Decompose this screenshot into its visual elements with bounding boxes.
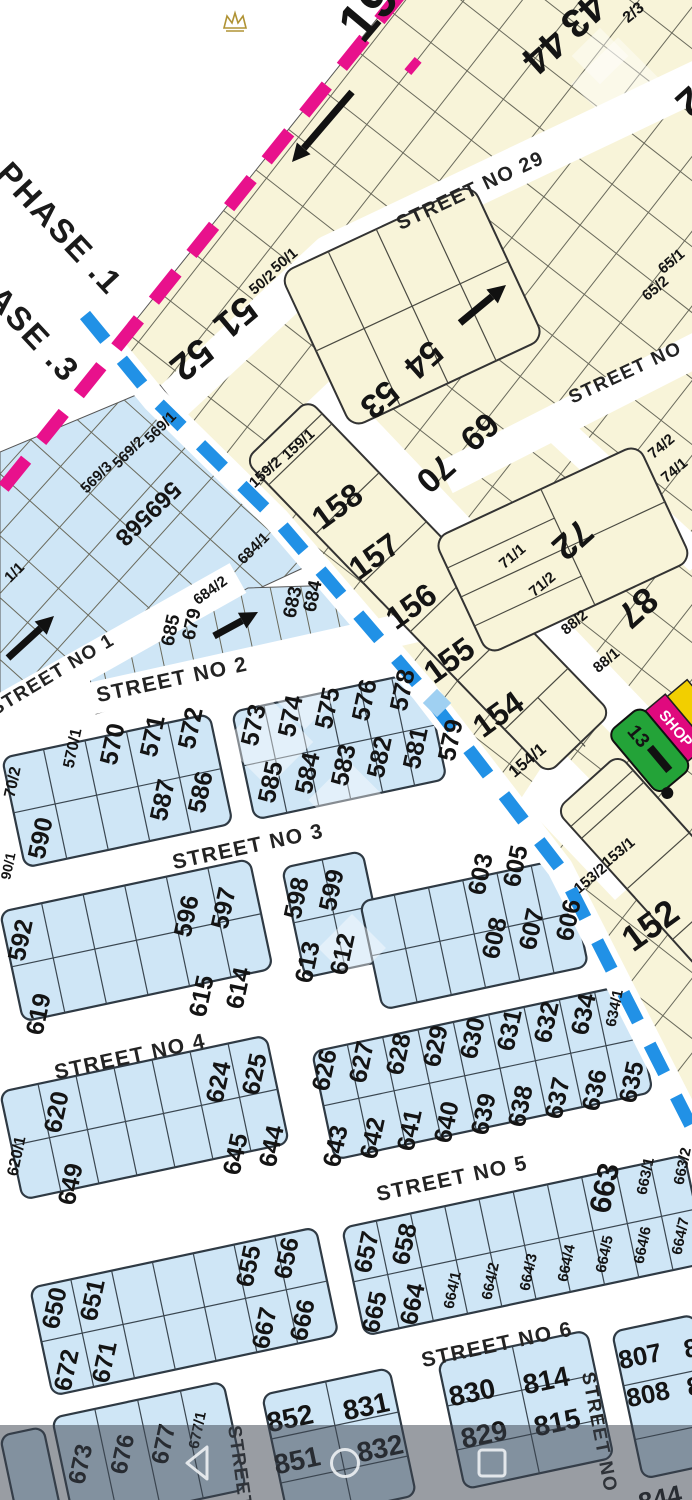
nav-recents-button[interactable] [476,1447,508,1484]
back-triangle-icon [182,1443,214,1483]
recents-square-icon [476,1447,508,1479]
nav-home-button[interactable] [329,1447,361,1484]
plot-map-canvas[interactable]: 43442/34250/150/251525354697065/165/274/… [0,0,692,1500]
nav-back-button[interactable] [182,1443,214,1488]
android-navbar [0,1425,692,1500]
map-viewport[interactable]: 43442/34250/150/251525354697065/165/274/… [0,0,692,1500]
home-circle-icon [329,1447,361,1479]
